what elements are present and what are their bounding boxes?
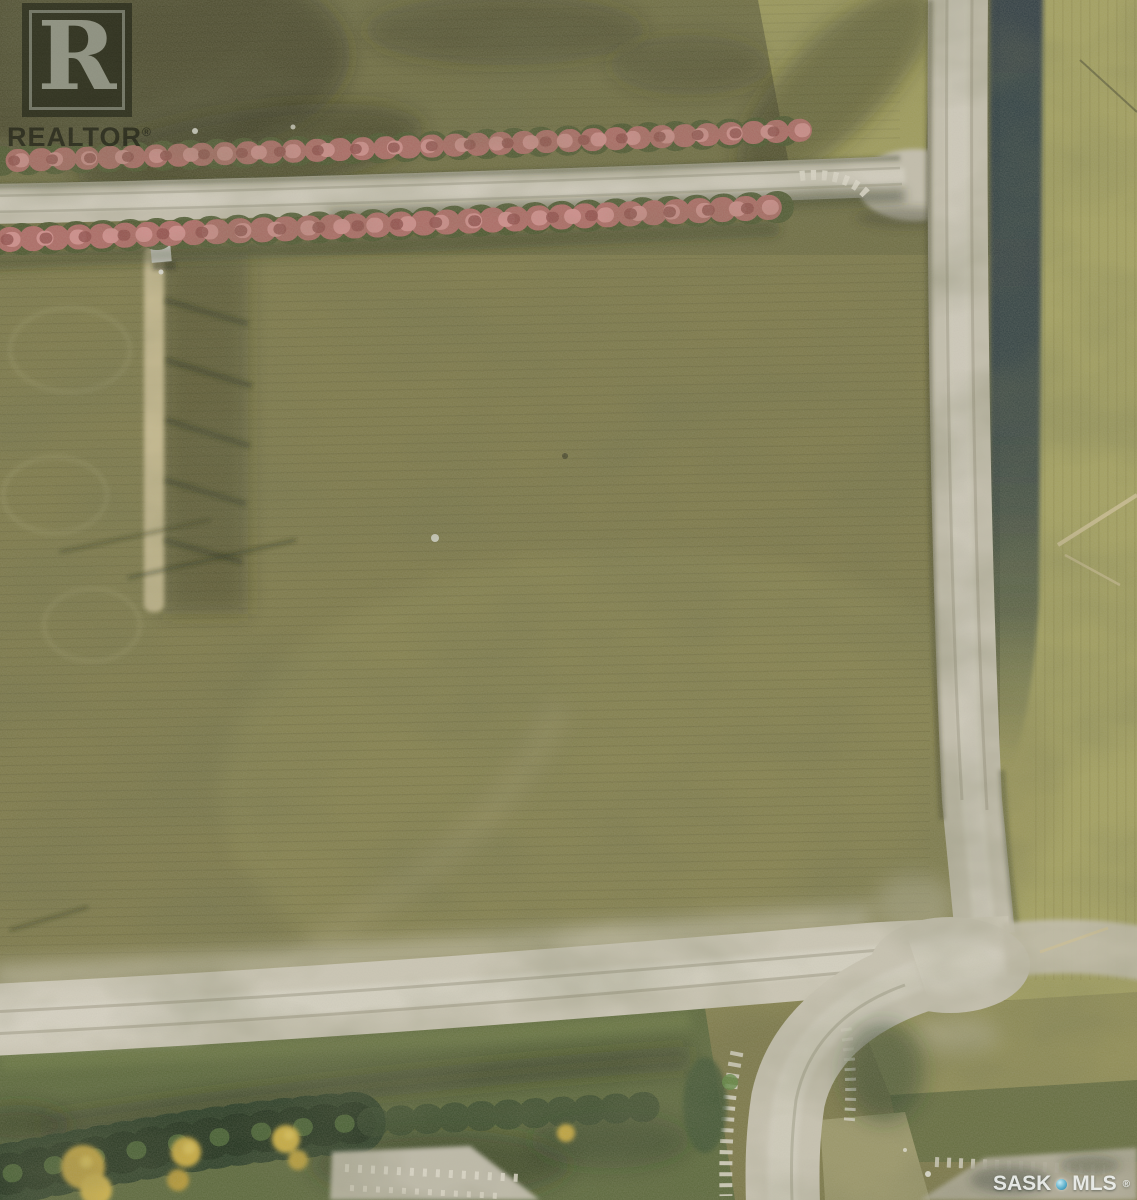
realtor-logo-letter: R bbox=[38, 9, 117, 104]
mls-suffix-text: MLS bbox=[1072, 1172, 1116, 1196]
realtor-wordmark-text: REALTOR bbox=[7, 122, 142, 152]
sask-mls-watermark: SASK MLS ® bbox=[993, 1172, 1130, 1196]
realtor-logo-box: R bbox=[22, 3, 132, 117]
mls-prefix-text: SASK bbox=[993, 1172, 1051, 1196]
grain-texture bbox=[0, 0, 1137, 1200]
mls-registered-mark: ® bbox=[1123, 1179, 1130, 1190]
realtor-registered-mark: ® bbox=[142, 125, 152, 139]
sphere-dot-icon bbox=[1056, 1179, 1067, 1190]
aerial-listing-photo: R REALTOR® SASK MLS ® bbox=[0, 0, 1137, 1200]
realtor-wordmark: REALTOR® bbox=[7, 122, 152, 153]
realtor-watermark: R REALTOR® bbox=[5, 3, 152, 153]
aerial-scene bbox=[0, 0, 1137, 1200]
